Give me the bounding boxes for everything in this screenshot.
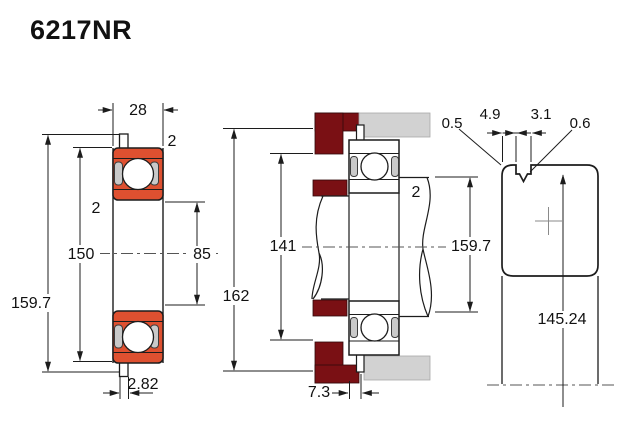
corner-radius-label: 0.5 [442, 115, 463, 132]
ball-top [123, 159, 154, 190]
technical-drawing-page: 6217NR 28 [0, 0, 640, 440]
front-section-view: 28 159.7 150 85 2 2 2.82 [6, 102, 218, 399]
dim-outer-diameter-label: 150 [68, 246, 95, 263]
dim-snap-ring-od-label: 159.7 [11, 295, 51, 312]
ball-bottom [123, 322, 154, 353]
mounted-section-view: 162 141 159.7 7.3 2 [217, 113, 496, 401]
groove-offset-label: 4.9 [480, 106, 501, 123]
dim-bore-label: 85 [193, 246, 211, 263]
chamfer-inner-label: 2 [92, 200, 101, 217]
groove-width-label: 3.1 [531, 106, 552, 123]
groove-edge-radius-label: 0.6 [570, 115, 591, 132]
dim-groove-position [487, 133, 546, 162]
dim-abutment-label: 159.7 [451, 238, 491, 255]
snap-ring-groove-detail-view: 145.24 0.5 4.9 3.1 0.6 [442, 106, 614, 407]
snap-ring-tab-top [120, 134, 129, 149]
dim-snap-ring-offset-label: 7.3 [308, 384, 330, 401]
dim-housing-bore-label: 162 [223, 288, 250, 305]
ball-bottom [361, 314, 388, 341]
leader-corner-radius [459, 129, 501, 165]
part-number-title: 6217NR [30, 15, 132, 45]
shaft-chamfer-label: 2 [412, 184, 421, 201]
ball-top [361, 153, 388, 180]
bearing-drawing-canvas: 6217NR 28 [0, 0, 640, 440]
dim-housing-shoulder-label: 141 [270, 238, 297, 255]
abutment-block-top [359, 113, 430, 137]
chamfer-outer-label: 2 [168, 133, 177, 150]
dim-groove-diameter-label: 145.24 [538, 311, 587, 328]
dim-width-label: 28 [129, 102, 147, 119]
abutment-block-bottom [364, 356, 430, 380]
dim-snap-ring-thickness-label: 2.82 [127, 376, 158, 393]
